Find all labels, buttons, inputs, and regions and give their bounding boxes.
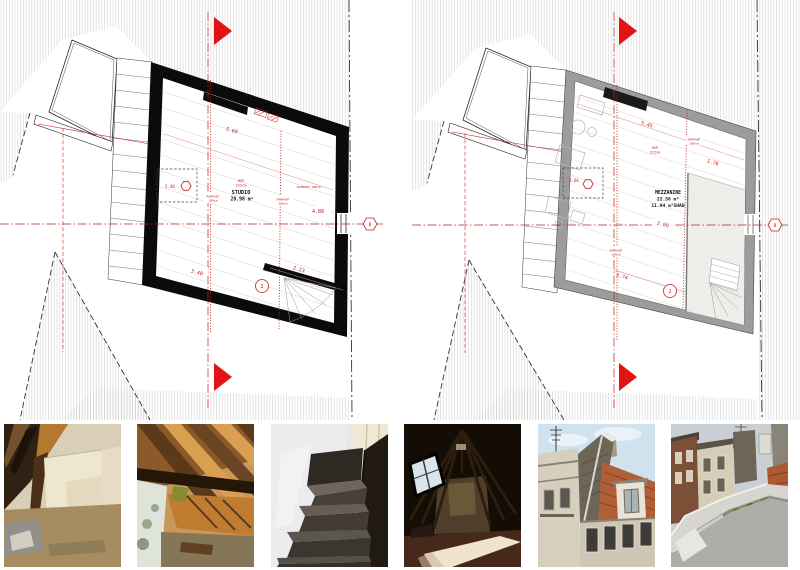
photo-carpeted-staircase: [271, 424, 388, 567]
neighbour-buildings-left: [34, 40, 152, 285]
rampant-inline: RAMPANT 180cm: [297, 185, 321, 189]
room-area: 22.56 m²: [657, 197, 679, 203]
window-opening: [744, 214, 759, 235]
height-value: 222cm: [236, 184, 247, 188]
stair-marker: 2: [668, 289, 671, 295]
dim-right: 4.88: [312, 209, 324, 215]
spot-level: 5.66: [569, 178, 579, 183]
height-value: 222cm: [650, 151, 660, 155]
photo-street-roofs-facades: [538, 424, 655, 567]
height-label: HSP: [238, 179, 245, 183]
rampant-value: 180cm: [689, 142, 698, 146]
void-over-studio: [686, 173, 745, 325]
stair-marker: 2: [260, 284, 263, 290]
left-plan-panel: HSP 222cm STUDIO 28.98 m² 5.69 4.88 2.23…: [0, 0, 383, 420]
section-arrow-icon: [214, 363, 232, 391]
room-title: MEZZANINE: [655, 190, 681, 196]
neighbour-buildings-right: [448, 48, 566, 293]
room-area: 28.98 m²: [230, 197, 253, 203]
photo-rooftop-parapet-gutter: [671, 424, 788, 567]
photo-attic-beams-corner: [4, 424, 121, 567]
plan-sheet: HSP 222cm STUDIO 28.98 m² 5.69 4.88 2.23…: [0, 0, 800, 570]
room-area-shab: 11.84 m²SHAB: [651, 203, 684, 209]
floor-plans-drawing: HSP 222cm STUDIO 28.98 m² 5.69 4.88 2.23…: [0, 0, 800, 422]
height-label: HSP: [652, 146, 658, 150]
right-plan-panel: HSP 222cm MEZZANINE 22.56 m² 11.84 m²SHA…: [412, 0, 800, 420]
axis-marker: B: [369, 222, 372, 228]
rampant-value: 180cm: [208, 199, 217, 203]
rampant-value: 180cm: [278, 202, 287, 206]
rampant-value: 180cm: [611, 253, 620, 257]
axis-marker: B: [774, 223, 777, 229]
room-title: STUDIO: [232, 190, 251, 196]
photo-attic-roof-insulation: [137, 424, 254, 567]
photo-dark-attic-skylight: [404, 424, 521, 567]
photo-strip: [0, 424, 800, 567]
window-opening: [337, 213, 353, 234]
spot-level: 5.40: [165, 184, 175, 189]
section-arrow-icon: [619, 363, 637, 391]
